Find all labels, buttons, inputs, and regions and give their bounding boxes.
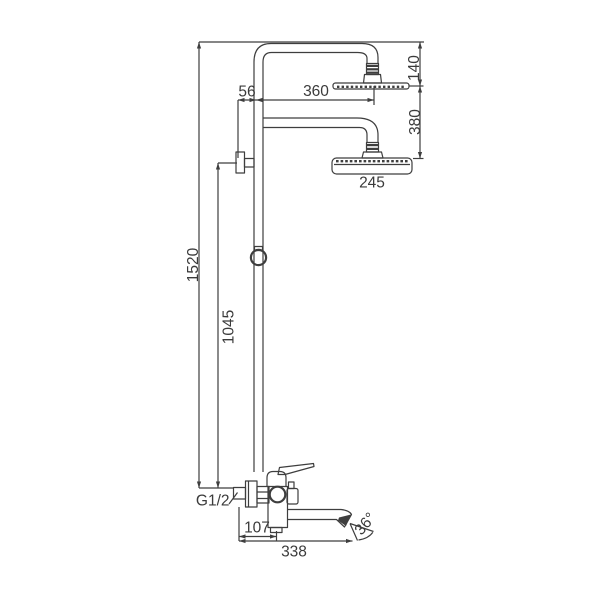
lower-arm-bottom-line <box>263 128 367 143</box>
diverter-knob <box>270 487 286 503</box>
hand-head-connector-flange <box>362 152 383 158</box>
bracket-arm <box>245 159 255 168</box>
label-spout-wall-offset: 107 <box>244 520 270 537</box>
inlet-wall-flange <box>246 481 258 507</box>
label-spout-swivel-angle: 36° <box>352 510 380 539</box>
hand-shower-head <box>332 143 412 175</box>
label-overall-height: 1520 <box>185 247 202 282</box>
cartridge-cap <box>267 472 286 487</box>
riser-outer-line <box>254 44 378 473</box>
label-rain-head-reach: 360 <box>303 83 329 100</box>
riser-column-and-arms <box>254 44 378 473</box>
label-riser-height: 1045 <box>221 310 238 344</box>
dimension-labels: 56 360 140 380 245 1520 1045 G1/2 107 33… <box>185 55 424 561</box>
spout-outlet <box>338 515 351 527</box>
side-knob <box>287 489 298 505</box>
rain-shower-head <box>333 64 409 90</box>
label-rain-head-drop: 140 <box>406 55 423 81</box>
dimension-lines <box>199 42 424 541</box>
lower-arm-top-line <box>263 118 378 143</box>
slider-knob <box>251 247 266 266</box>
label-inlet-connection: G1/2 <box>196 493 230 510</box>
label-spout-reach: 338 <box>281 544 307 561</box>
label-hand-head-width: 245 <box>359 175 385 192</box>
inlet-hex-nut <box>257 487 269 504</box>
slider-knob-circle <box>251 250 266 265</box>
wall-bracket <box>236 152 254 173</box>
shower-dimension-drawing: 56 360 140 380 245 1520 1045 G1/2 107 33… <box>0 0 600 600</box>
label-wall-offset: 56 <box>238 84 255 101</box>
side-knob-stem <box>289 482 295 489</box>
riser-inner-line <box>263 53 367 473</box>
hex-facet-lines <box>257 492 269 499</box>
inlet-nipple <box>234 488 246 500</box>
rain-head-connector-flange <box>364 75 382 84</box>
label-heads-gap: 380 <box>407 109 424 135</box>
hand-head-body <box>332 158 412 174</box>
bracket-wall-flange <box>236 152 245 173</box>
hand-head-thread-stem <box>367 143 379 153</box>
technical-drawing-svg: 56 360 140 380 245 1520 1045 G1/2 107 33… <box>0 0 600 600</box>
